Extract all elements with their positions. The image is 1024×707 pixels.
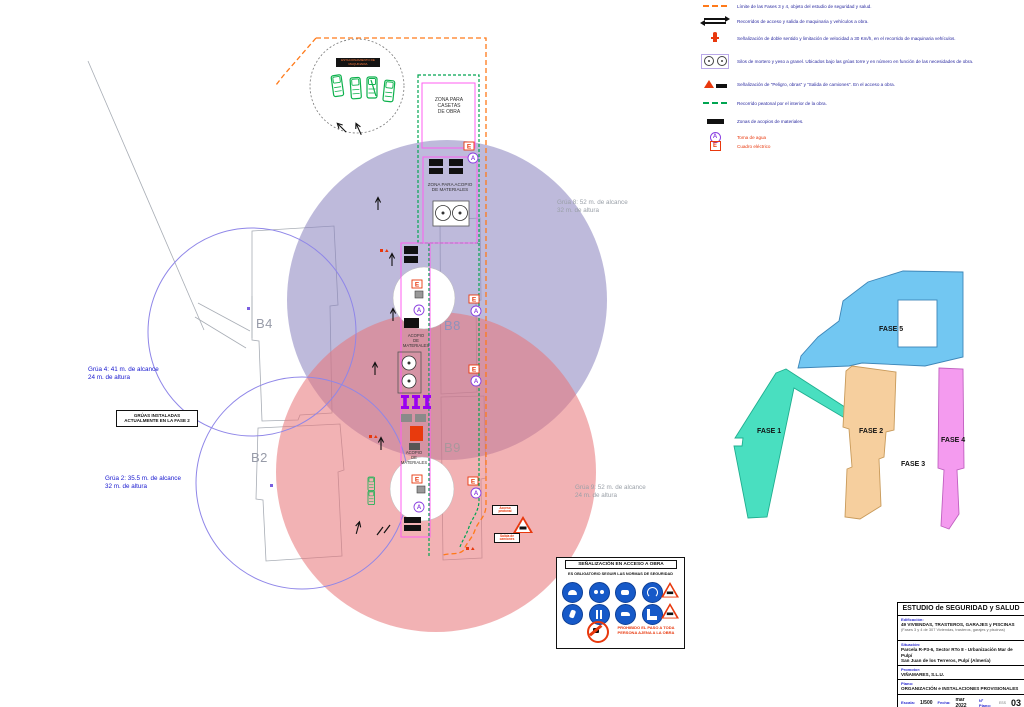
drawing-value: ORGANIZACIÓN e INSTALACIONES PROVISIONAL… xyxy=(901,686,1021,692)
legend-text: Señalización de doble sentido y limitaci… xyxy=(737,36,956,41)
electric-panel-icon: E xyxy=(700,141,730,151)
legend-item-silos: Silos de mortero y yeso a granel. Ubicad… xyxy=(700,56,973,66)
orange-dashed-line-icon xyxy=(700,5,730,7)
sheet-number-label: Nº Plano: xyxy=(979,698,994,707)
machinery-parking-circle xyxy=(310,39,404,133)
truck-exit-sign: Salida de camiones xyxy=(494,533,520,543)
building-b9-label: B9 xyxy=(444,440,461,455)
water-point-marker xyxy=(471,376,481,386)
water-point-marker xyxy=(414,502,424,512)
crane9-label: Grúa 9: 52 m. de alcance 24 m. de altura xyxy=(575,484,646,500)
fase4-shape xyxy=(938,368,964,529)
legend-text: Recorridos de acceso y salida de maquina… xyxy=(737,19,869,24)
machinery-parking-label: ESTACIONAMIENTO DE MAQUINARIA xyxy=(336,58,380,67)
water-point-marker xyxy=(468,153,478,163)
date-label: Fecha: xyxy=(938,700,951,705)
no-entry-sign xyxy=(587,621,609,643)
crane4-label: Grúa 4: 41 m. de alcance 24 m. de altura xyxy=(88,366,159,382)
access-arrows-icon xyxy=(700,18,730,24)
formwork-beams xyxy=(401,395,431,409)
legend-text: Señalización de "Peligro, obras" y "Sali… xyxy=(737,82,895,87)
electric-panel-marker xyxy=(464,142,474,150)
legend-text: Silos de mortero y yeso a granel. Ubicad… xyxy=(737,59,973,64)
scale-date-number-row: Escala: 1/500 Fecha: mar 2022 Nº Plano: … xyxy=(898,695,1024,707)
mandatory-boots-sign xyxy=(642,604,663,625)
silos-icon xyxy=(700,54,730,69)
legend-item-electric-panel: E Cuadro eléctrico xyxy=(700,141,770,151)
legend-text: Límite de las Fases 3 y 4, objeto del es… xyxy=(737,4,872,9)
prohibition-text: PROHIBIDO EL PASO A TODA PERSONA AJENA A… xyxy=(612,625,680,635)
title-block: ESTUDIO de SEGURIDAD y SALUD Edificación… xyxy=(897,602,1024,707)
zona-acopio-label: ZONA PARA ACOPIO DE MATERIALES xyxy=(420,182,480,192)
warning-triangle-icon xyxy=(661,603,679,619)
mandatory-mask-sign xyxy=(615,582,636,603)
crane8-label: Grúa 8: 52 m. de alcance 32 m. de altura xyxy=(557,199,628,215)
developer-value: VIÑAMARES, S.L.U. xyxy=(901,672,1021,678)
water-point-marker xyxy=(471,306,481,316)
mandatory-helmet-sign xyxy=(562,582,583,603)
legend-item-stockpile-zones: Zonas de acopios de materiales. xyxy=(700,116,803,126)
mask-icon xyxy=(621,590,629,595)
zona-casetas-label: ZONA PARA CASETAS DE OBRA xyxy=(421,97,477,115)
installed-cranes-note: GRÚAS INSTALADAS ACTUALMENTE EN LA FASE … xyxy=(116,410,198,427)
goggles-icon xyxy=(594,590,598,594)
stockpile-rect-icon xyxy=(700,119,730,124)
fase1-label: FASE 1 xyxy=(757,428,781,435)
mandatory-goggles-sign xyxy=(589,582,610,603)
legend-text: Zonas de acopios de materiales. xyxy=(737,119,803,124)
warning-triangle-icon xyxy=(661,582,679,598)
fase2-shape xyxy=(843,366,896,519)
boots-icon xyxy=(647,609,657,620)
mandatory-footwear-sign xyxy=(615,604,636,625)
fase4-label: FASE 4 xyxy=(941,437,965,444)
fase5-courtyard xyxy=(898,300,937,347)
helmet-icon xyxy=(568,590,577,595)
harness-icon xyxy=(596,610,598,619)
acopio-label-2: ACOPIO DE MATERIALES xyxy=(397,450,431,465)
sheet-number-value: 03 xyxy=(1011,698,1021,707)
danger-signs-icon xyxy=(700,80,730,88)
fase3-label: FASE 3 xyxy=(901,461,925,468)
site-plan-svg: E A xyxy=(0,0,1024,707)
water-point-marker xyxy=(414,305,424,315)
scale-value: 1/500 xyxy=(920,700,933,706)
legend-item-access-routes: Recorridos de acceso y salida de maquina… xyxy=(700,16,869,26)
legend-item-danger-signs: Señalización de "Peligro, obras" y "Sali… xyxy=(700,79,895,89)
electric-panel-marker xyxy=(469,295,479,303)
crane2-label: Grúa 2: 35.5 m. de alcance 32 m. de altu… xyxy=(105,475,181,491)
date-value: mar 2022 xyxy=(955,697,973,707)
legend-item-pedestrian-route: Recorrido peatonal por el interior de la… xyxy=(700,98,827,108)
two-way-speed-sign-icon xyxy=(700,35,730,42)
electric-panel-marker xyxy=(412,280,422,288)
legend-text: Cuadro eléctrico xyxy=(737,144,770,149)
fase2-label: FASE 2 xyxy=(859,428,883,435)
electric-panel-marker xyxy=(469,365,479,373)
water-point-marker xyxy=(471,488,481,498)
building-b2-label: B2 xyxy=(251,450,268,465)
fase1-shape xyxy=(734,369,851,518)
location-value-2: San Juan de los Terreros, Pulpí (Almería… xyxy=(901,658,1021,664)
sheet-number-prefix: ESS xyxy=(999,701,1006,705)
scale-label: Escala: xyxy=(901,700,915,705)
electric-panel-marker xyxy=(468,477,478,485)
acopio-label-1: ACOPIO DE MATERIALES xyxy=(399,333,433,348)
legend-text: Toma de agua xyxy=(737,135,766,140)
building-subvalue: (Fases 3 y 4 de 307 Viviendas, trasteros… xyxy=(901,628,1021,633)
pedestrian-access-sign: Acceso peatonal xyxy=(492,505,518,515)
fase5-shape xyxy=(798,271,963,368)
location-value-1: Parcela R-P3-6, Sector RTo 8 - Urbanizac… xyxy=(901,647,1021,658)
signage-title: SEÑALIZACIÓN EN ACCESO A OBRA xyxy=(565,560,677,569)
footwear-icon xyxy=(621,612,630,616)
sheet-title: ESTUDIO de SEGURIDAD y SALUD xyxy=(898,603,1024,616)
green-dashed-line-icon xyxy=(700,102,730,104)
plot-boundary-lines xyxy=(88,61,252,348)
signage-subtitle: ES OBLIGATORIO SEGUIR LAS NORMAS DE SEGU… xyxy=(557,572,684,576)
building-b4-label: B4 xyxy=(256,316,273,331)
access-signage-panel: SEÑALIZACIÓN EN ACCESO A OBRA ES OBLIGAT… xyxy=(556,557,685,649)
gloves-icon xyxy=(568,609,575,618)
mandatory-gloves-sign xyxy=(562,604,583,625)
location-section: Situación: Parcela R-P3-6, Sector RTo 8 … xyxy=(898,641,1024,666)
ear-protection-icon xyxy=(647,587,658,598)
building-section: Edificación: 49 VIVIENDAS, TRASTEROS, GA… xyxy=(898,616,1024,641)
building-b8-label: B8 xyxy=(444,318,461,333)
mandatory-ear-protection-sign xyxy=(642,582,663,603)
drawing-sheet: E A xyxy=(0,0,1024,707)
fase5-label: FASE 5 xyxy=(879,326,903,333)
legend-item-two-way-speed: Señalización de doble sentido y limitaci… xyxy=(700,33,956,43)
developer-section: Promotor: VIÑAMARES, S.L.U. xyxy=(898,666,1024,680)
electric-panel-marker xyxy=(412,475,422,483)
drawing-section: Plano: ORGANIZACIÓN e INSTALACIONES PROV… xyxy=(898,680,1024,695)
legend-item-phase-limit: Límite de las Fases 3 y 4, objeto del es… xyxy=(700,1,872,11)
phases-diagram xyxy=(734,271,964,529)
legend-text: Recorrido peatonal por el interior de la… xyxy=(737,101,827,106)
